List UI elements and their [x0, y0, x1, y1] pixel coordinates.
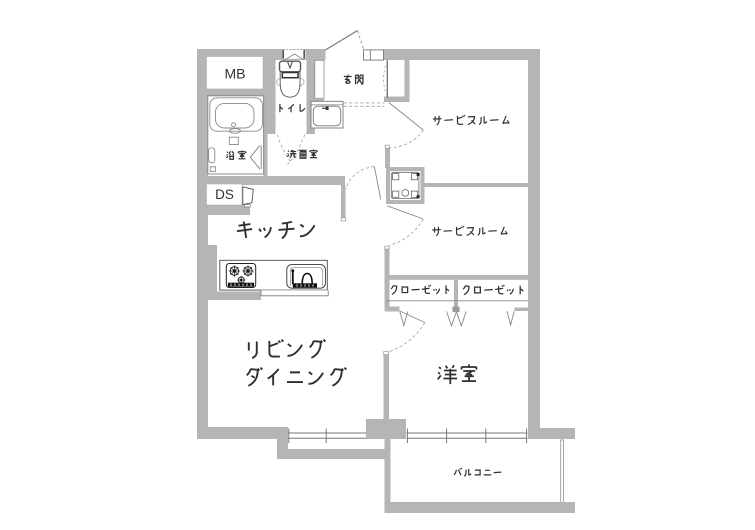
svg-text:MB: MB	[225, 66, 246, 82]
svg-text:DS: DS	[215, 187, 234, 202]
